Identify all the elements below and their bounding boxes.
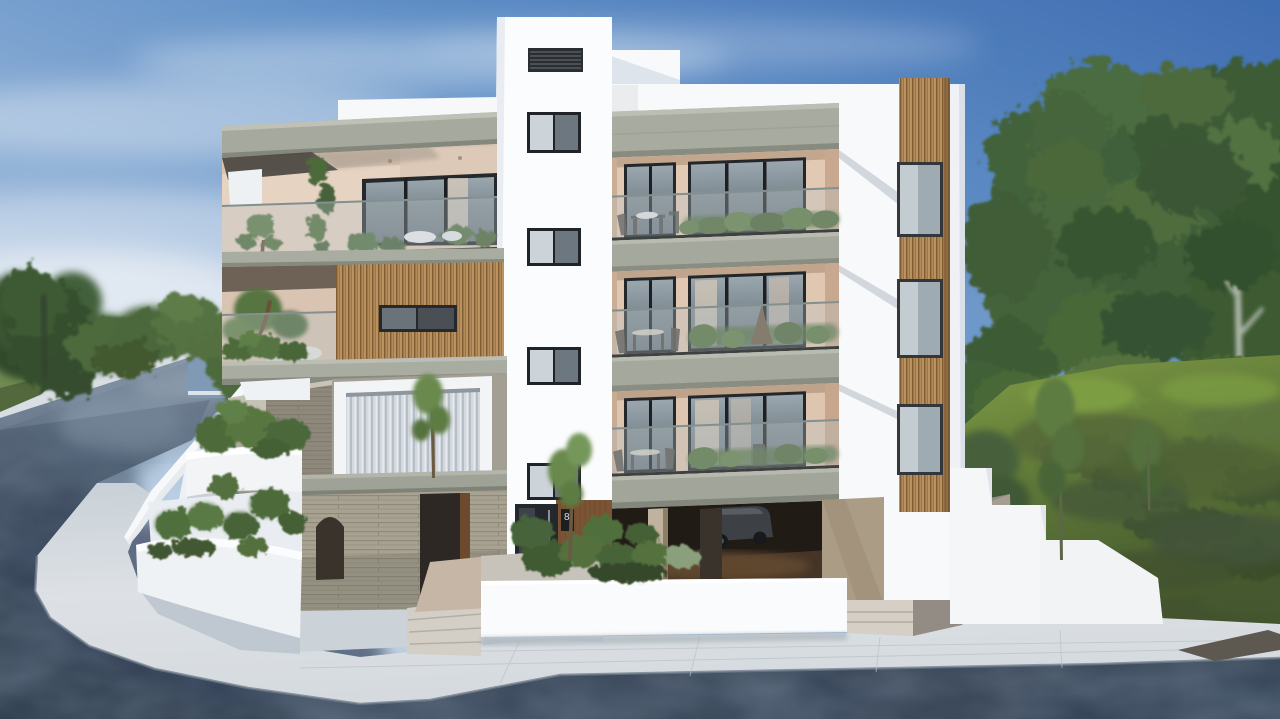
svg-text:8: 8 (564, 512, 570, 523)
